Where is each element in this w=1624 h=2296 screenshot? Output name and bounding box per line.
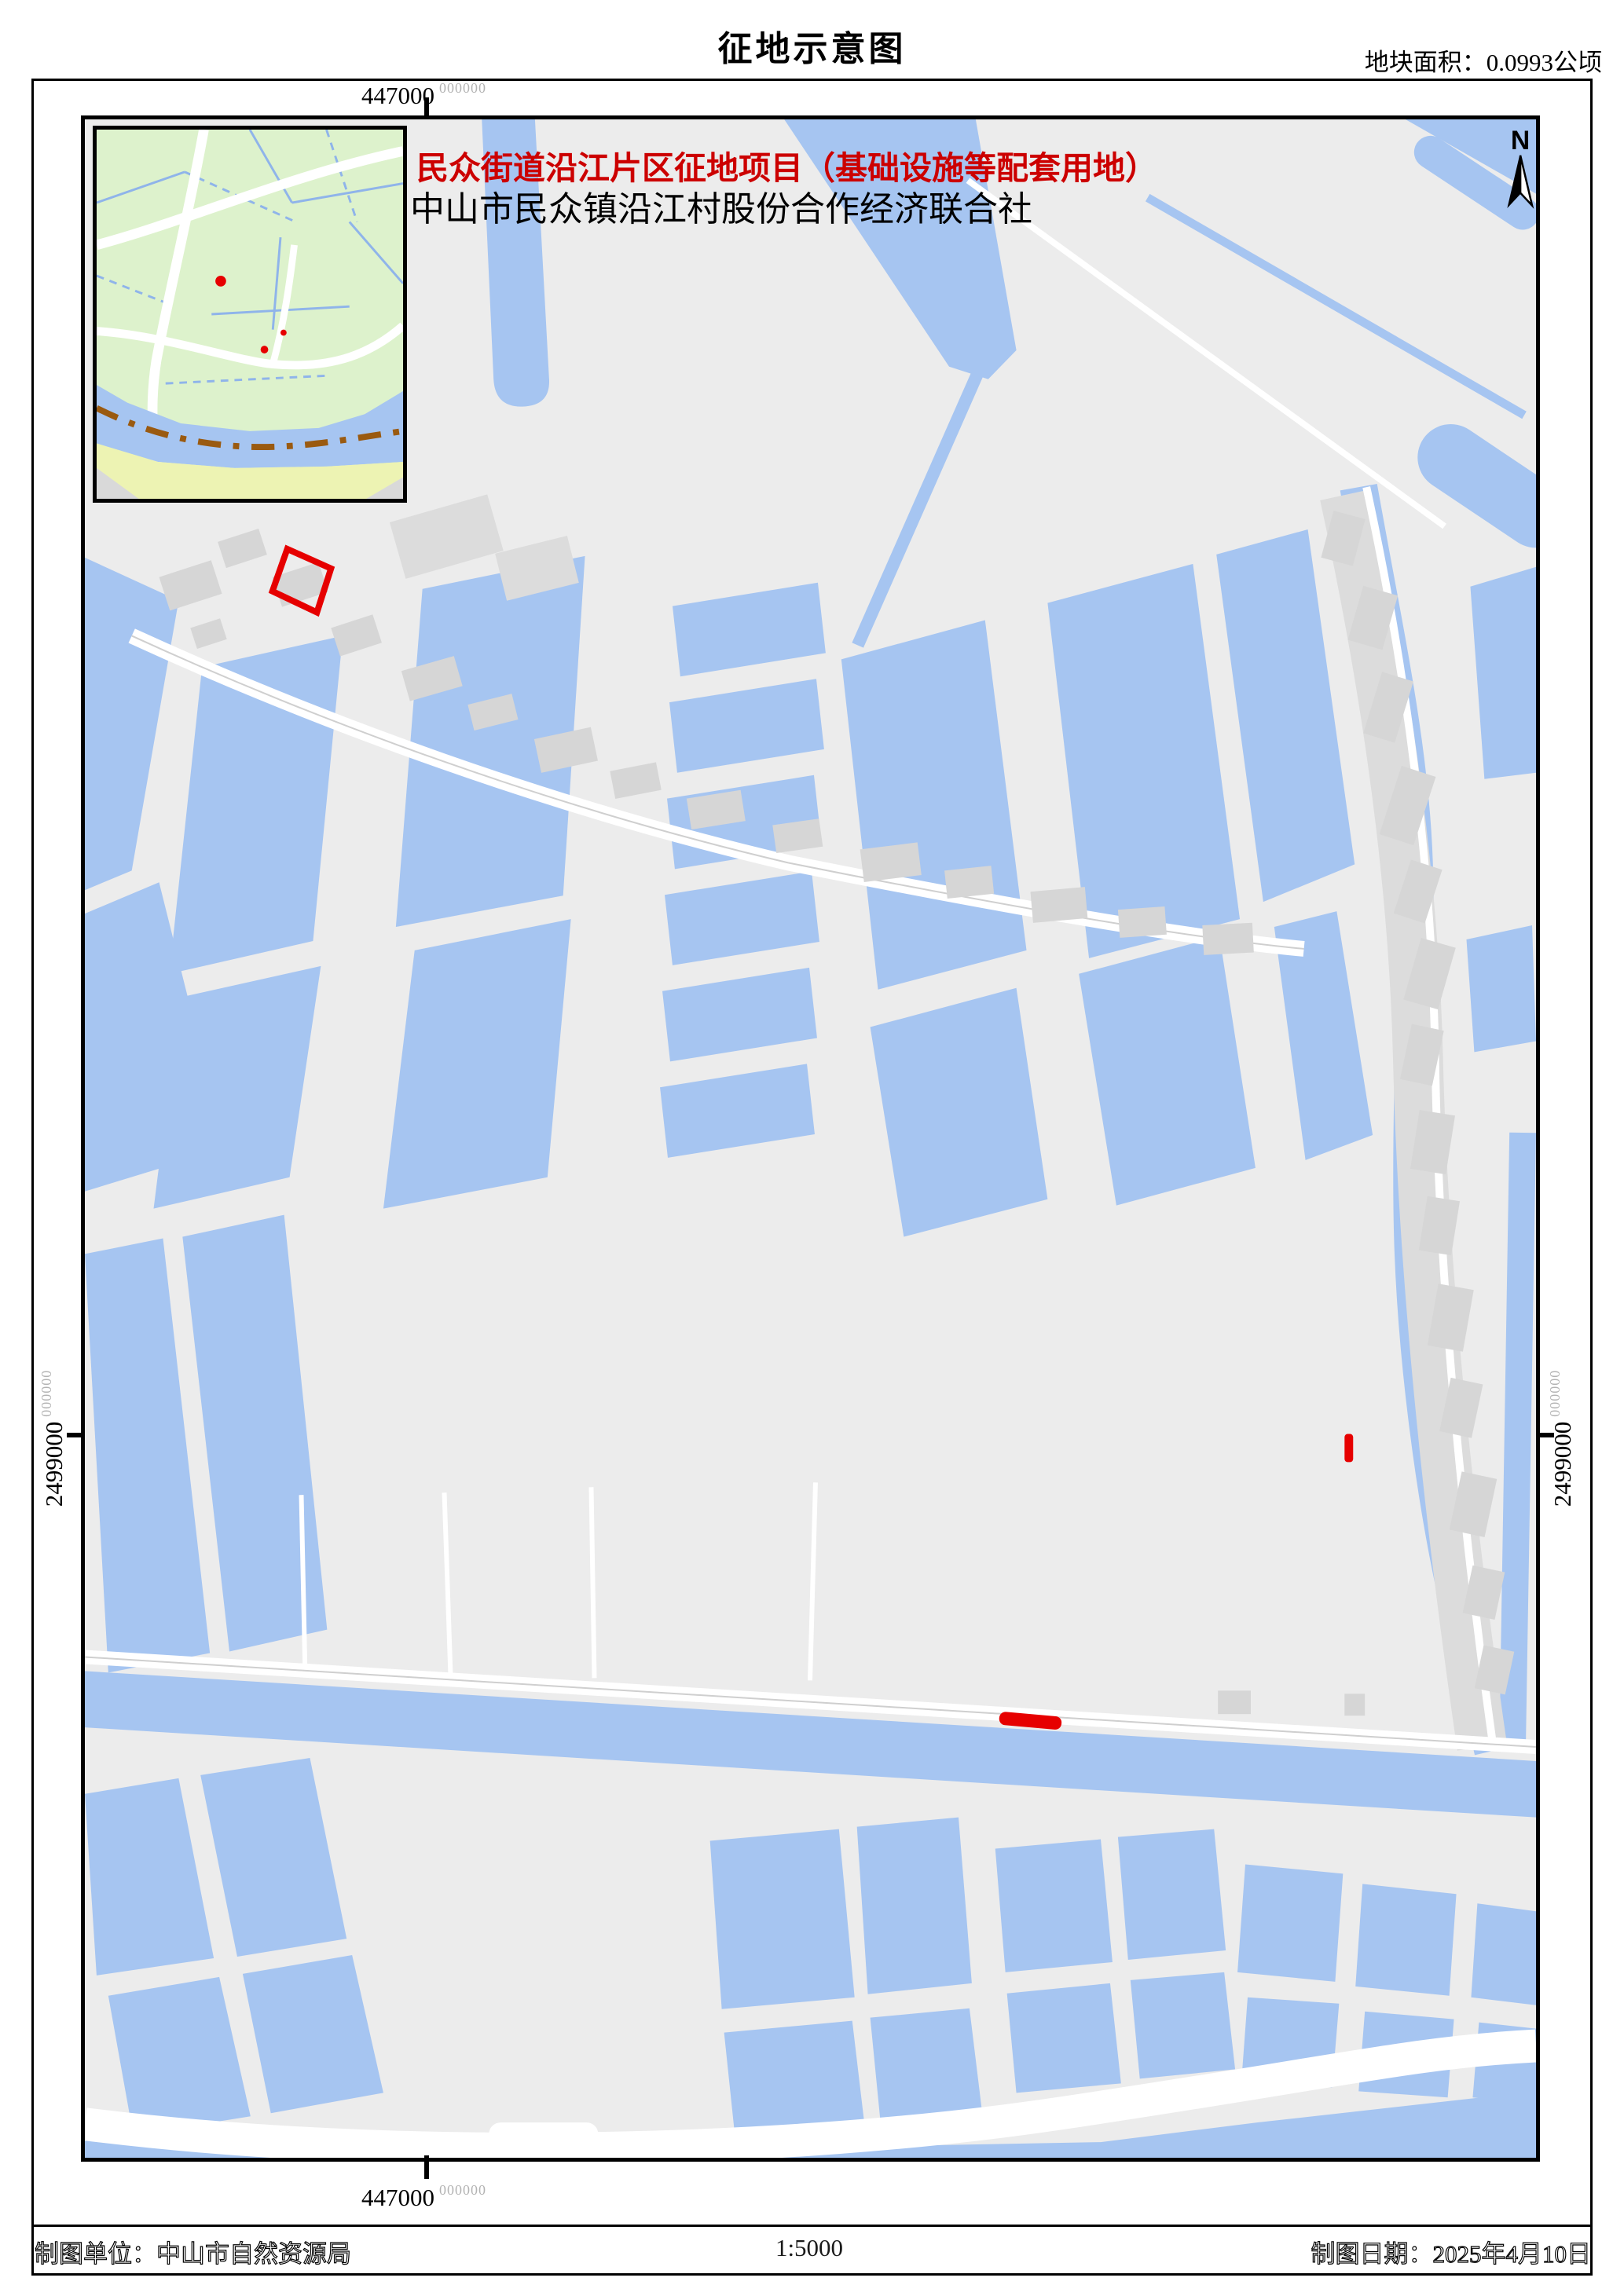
organization-name: 中山市民众镇沿江村股份合作经济联合社 bbox=[410, 181, 1032, 231]
coord-label-left: 2499000000000 bbox=[38, 1336, 68, 1540]
building bbox=[1118, 906, 1167, 938]
water-right-blob bbox=[1451, 457, 1536, 514]
coord-label-bottom: 447000000000 bbox=[361, 2182, 486, 2212]
coord-tick-bottom bbox=[424, 2155, 429, 2179]
building bbox=[1218, 1690, 1251, 1714]
coord-tick-left bbox=[67, 1433, 81, 1437]
pond bbox=[1237, 1864, 1343, 1981]
building bbox=[860, 842, 922, 882]
north-arrow-label: N bbox=[1511, 126, 1530, 156]
coord-label-right: 2499000000000 bbox=[1547, 1336, 1577, 1540]
boat-capsule bbox=[489, 2122, 598, 2146]
building bbox=[1030, 887, 1087, 923]
pond bbox=[995, 1840, 1113, 1972]
pond bbox=[724, 2021, 865, 2137]
area-note: 地块面积：0.0993公顷 bbox=[1365, 42, 1602, 78]
pond bbox=[710, 1829, 855, 2009]
pond bbox=[857, 1818, 972, 1994]
footer-scale: 1:5000 bbox=[731, 2234, 888, 2262]
pond bbox=[1466, 925, 1536, 1052]
coord-tick-right bbox=[1540, 1433, 1554, 1437]
inset-overview-map bbox=[93, 126, 407, 503]
parcel-location-dot bbox=[215, 276, 226, 287]
pond bbox=[871, 2009, 982, 2121]
footer-divider bbox=[31, 2225, 1593, 2227]
building bbox=[944, 866, 994, 899]
pond bbox=[1471, 1903, 1536, 2005]
parcel-marker-field bbox=[1344, 1434, 1353, 1463]
pond bbox=[1355, 1884, 1456, 1995]
building bbox=[1202, 923, 1254, 955]
coord-tick-top bbox=[424, 97, 429, 118]
map-sheet: 征地示意图 地块面积：0.0993公顷 bbox=[0, 0, 1624, 2296]
footer-agency: 制图单位：中山市自然资源局 bbox=[35, 2234, 351, 2269]
field-path bbox=[592, 1487, 595, 1678]
parcel-location-dot bbox=[280, 330, 287, 336]
footer-date: 制图日期：2025年4月10日 bbox=[1311, 2234, 1592, 2269]
building bbox=[1344, 1694, 1365, 1716]
parcel-location-dot bbox=[261, 346, 269, 353]
water-right-edge-band bbox=[1512, 1133, 1523, 1743]
pond bbox=[1131, 1972, 1235, 2078]
pond bbox=[1007, 1983, 1121, 2093]
pond bbox=[1118, 1829, 1226, 1960]
